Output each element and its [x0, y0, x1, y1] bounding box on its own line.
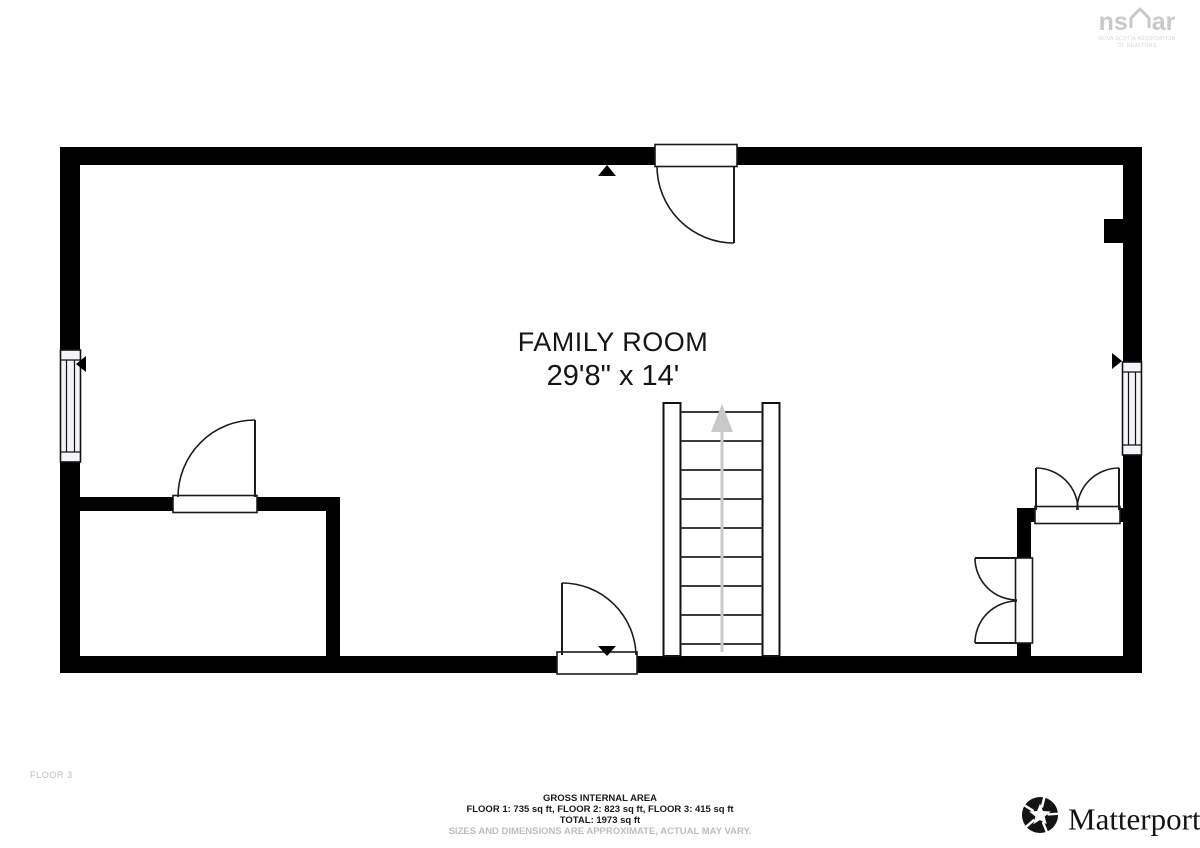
door-openings — [173, 145, 1120, 675]
footer-total-area: TOTAL: 1973 sq ft — [0, 815, 1200, 826]
matterport-logo: Matterport® — [1021, 795, 1200, 839]
matterport-pinwheel-icon — [1021, 796, 1059, 839]
nsar-caption-line2: OF REALTORS — [1082, 43, 1192, 49]
storage-door-swing — [178, 420, 255, 497]
matterport-wordmark: Matterport® — [1068, 795, 1200, 839]
room-dimensions: 29'8" x 14' — [518, 359, 709, 393]
right-window — [1123, 362, 1142, 455]
bottom-door-opening — [557, 652, 637, 674]
house-icon — [1129, 6, 1151, 35]
footer-area-summary: GROSS INTERNAL AREA FLOOR 1: 735 sq ft, … — [0, 793, 1200, 837]
footer-title: GROSS INTERNAL AREA — [0, 793, 1200, 804]
room-label: FAMILY ROOM 29'8" x 14' — [518, 326, 709, 393]
closet-top-double-doors — [1036, 468, 1119, 510]
nsar-caption-line1: NOVA SCOTIA ASSOCIATION — [1082, 36, 1192, 42]
staircase — [664, 403, 780, 656]
nsar-logo: ns ar NOVA SCOTIA ASSOCIATION OF REALTOR… — [1082, 6, 1192, 49]
matterport-name: Matterport — [1068, 801, 1200, 836]
floorplan-page: FAMILY ROOM 29'8" x 14' FLOOR 3 GROSS IN… — [0, 0, 1200, 848]
room-name: FAMILY ROOM — [518, 326, 709, 359]
stair-rail-right — [763, 403, 780, 656]
storage-room-walls — [80, 497, 340, 656]
nsar-suffix: ar — [1152, 9, 1176, 35]
stair-rail-left — [664, 403, 681, 656]
bottom-door-swing — [562, 583, 636, 655]
floor-label: FLOOR 3 — [30, 770, 73, 780]
footer-floor-areas: FLOOR 1: 735 sq ft, FLOOR 2: 823 sq ft, … — [0, 804, 1200, 815]
top-door-swing — [657, 166, 734, 243]
nsar-wordmark: ns ar — [1082, 6, 1192, 35]
storage-door-opening — [173, 496, 257, 513]
footer-disclaimer: SIZES AND DIMENSIONS ARE APPROXIMATE, AC… — [0, 826, 1200, 837]
closet-side-opening — [1016, 558, 1033, 643]
nsar-prefix: ns — [1099, 9, 1128, 35]
floor-plan-drawing — [0, 0, 1200, 848]
closet-side-double-doors — [975, 558, 1017, 643]
wall-notch — [1104, 219, 1124, 243]
left-window — [61, 350, 81, 462]
top-door-opening — [655, 145, 737, 167]
entry-arrow-top-icon — [598, 165, 616, 176]
marker-right-window-icon — [1112, 353, 1122, 369]
